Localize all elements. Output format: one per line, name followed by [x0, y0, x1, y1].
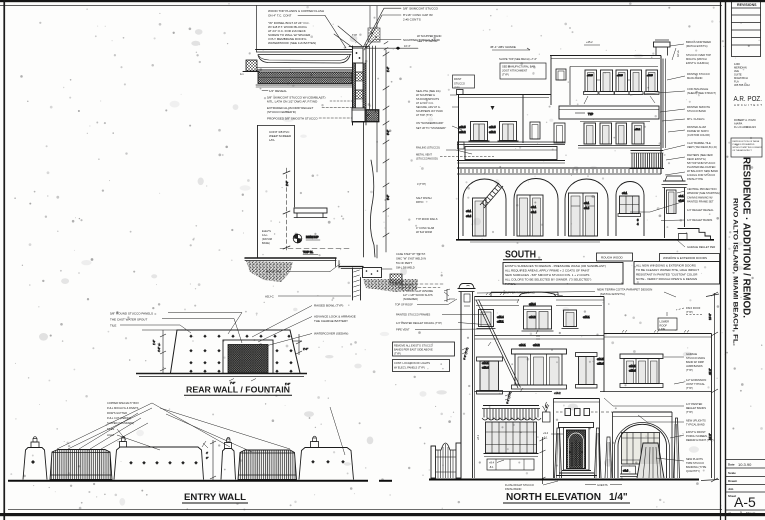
- svg-text:FINISH BAND: FINISH BAND: [505, 487, 522, 491]
- svg-text:GARAGE: GARAGE: [686, 352, 697, 356]
- svg-text:+14.2: +14.2: [533, 343, 540, 347]
- svg-text:FLUSH RIGHT STUCCO: FLUSH RIGHT STUCCO: [505, 483, 534, 487]
- svg-text:JAMB BANDS: JAMB BANDS: [686, 364, 703, 368]
- svg-text:TYPICAL BAND: TYPICAL BAND: [686, 423, 705, 427]
- svg-text:(STUCCO EMBED'D): (STUCCO EMBED'D): [267, 110, 296, 114]
- svg-text:of: of: [728, 511, 731, 515]
- svg-text:ADJ-C: ADJ-C: [265, 295, 275, 299]
- svg-text:TOP OF ROOF: TOP OF ROOF: [395, 303, 413, 307]
- svg-text:2'-0": 2'-0": [303, 347, 308, 351]
- svg-text:L/FL: L/FL: [269, 138, 275, 142]
- svg-text:TILES: TILES: [107, 427, 114, 431]
- svg-text:GUESTS: GUESTS: [597, 483, 608, 487]
- svg-text:5: 5: [740, 511, 742, 515]
- svg-text:0": 0": [206, 456, 208, 460]
- svg-text:NOTE - VERIFY ROUGH OPEN'G & D: NOTE - VERIFY ROUGH OPEN'G & DESIGN: [636, 277, 697, 281]
- svg-text:1'-4": 1'-4": [386, 67, 390, 72]
- svg-text:QUANTITY): QUANTITY): [686, 469, 700, 473]
- svg-text:Sheets: Sheets: [746, 511, 756, 515]
- svg-text:(CUSTOM COLOR): (CUSTOM COLOR): [687, 133, 710, 137]
- svg-text:STUCCO: STUCCO: [454, 82, 465, 86]
- svg-text:WINDOW (SHE STARTING): WINDOW (SHE STARTING): [687, 191, 720, 195]
- svg-text:PROPOSED 5/8" SMOOTH STUCCO: PROPOSED 5/8" SMOOTH STUCCO: [267, 117, 318, 121]
- svg-text:NEW UPLIGHTS: NEW UPLIGHTS: [686, 419, 706, 423]
- svg-text:PAINT: PAINT: [454, 77, 462, 81]
- svg-text:TOP M.: TOP M.: [303, 250, 313, 254]
- svg-text:+10.5: +10.5: [459, 125, 466, 129]
- svg-text:(TYP): (TYP): [454, 87, 460, 89]
- svg-text:REPAIR & PAINT (TYP): REPAIR & PAINT (TYP): [686, 438, 714, 442]
- svg-text:SET UP TO "STANDARD": SET UP TO "STANDARD": [416, 126, 446, 130]
- svg-text:3'-6": 3'-6": [386, 195, 390, 200]
- svg-text:BANDING (TYPE: BANDING (TYPE: [686, 465, 706, 469]
- svg-text:W/ SCUPPER &: W/ SCUPPER &: [416, 93, 435, 97]
- svg-text:WATERCOVER (SEDAN): WATERCOVER (SEDAN): [314, 332, 348, 336]
- svg-text:& RAILG FOR STUCCO: & RAILG FOR STUCCO: [687, 173, 715, 177]
- svg-text:ALL COLORS TO BE SELECTED BY O: ALL COLORS TO BE SELECTED BY OWNER. ("3 …: [505, 278, 591, 282]
- svg-text:PAINTED FRAME SET: PAINTED FRAME SET: [687, 200, 714, 204]
- svg-text:EXIST'G FRONT: EXIST'G FRONT: [686, 430, 706, 434]
- svg-text:SS DOWNSPOUTS: SS DOWNSPOUTS: [416, 97, 439, 101]
- svg-text:+9.1: +9.1: [679, 194, 685, 198]
- svg-text:1/4": 1/4": [609, 492, 628, 503]
- svg-text:+16.4: +16.4: [529, 302, 536, 306]
- svg-text:2 #5 CONT'S: 2 #5 CONT'S: [403, 18, 421, 22]
- svg-text:NORTH ELEVATION: NORTH ELEVATION: [506, 492, 601, 503]
- svg-text:TILE: TILE: [110, 324, 116, 328]
- svg-text:ROUGH WOOD: ROUGH WOOD: [601, 256, 623, 260]
- svg-text:ROOF: ROOF: [660, 324, 668, 328]
- svg-text:RAFTERS (SEE NEW: RAFTERS (SEE NEW: [687, 153, 713, 157]
- svg-text:SLOPE TOP (SEE MECH) +7'-6": SLOPE TOP (SEE MECH) +7'-6": [499, 57, 537, 61]
- svg-text:SECURE, ADV AT G.: SECURE, ADV AT G.: [416, 105, 441, 109]
- svg-text:MERIDIAN: MERIDIAN: [734, 66, 747, 70]
- svg-text:1/4" PAINTED: 1/4" PAINTED: [686, 402, 702, 406]
- svg-text:PATIO: PATIO: [416, 200, 423, 204]
- svg-text:(MATCH EXIST'G): (MATCH EXIST'G): [686, 44, 708, 48]
- svg-text:1'-6": 1'-6": [152, 340, 156, 345]
- svg-text:GMC "W" SYST WELD IN: GMC "W" SYST WELD IN: [396, 257, 426, 261]
- svg-text:MIAMI BCH: MIAMI BCH: [734, 76, 748, 80]
- svg-text:AIA/PA: AIA/PA: [734, 122, 742, 126]
- svg-text:PAINTED SMOOTH: PAINTED SMOOTH: [687, 105, 710, 109]
- svg-text:(TYP): (TYP): [394, 352, 401, 356]
- svg-text:FIN'd ROOF: FIN'd ROOF: [686, 306, 701, 310]
- svg-text:BAND W/ DRIP: BAND W/ DRIP: [686, 360, 704, 364]
- svg-text:GARAGE REGLET PER: GARAGE REGLET PER: [687, 245, 715, 249]
- svg-text:SOUTH: SOUTH: [505, 250, 536, 261]
- svg-text:(TYP): (TYP): [502, 73, 509, 77]
- svg-text:(DATUM: (DATUM: [262, 237, 272, 241]
- svg-text:AT 12 NO' O.C.: AT 12 NO' O.C.: [416, 101, 434, 105]
- svg-text:PLANS IS PROHIBITED: PLANS IS PROHIBITED: [733, 143, 755, 146]
- svg-text:ADVANCE LOOK & ARRANGE: ADVANCE LOOK & ARRANGE: [314, 315, 356, 319]
- svg-text:THE CAST WATER SPOUT: THE CAST WATER SPOUT: [110, 318, 147, 322]
- svg-text:3 (TYP): 3 (TYP): [417, 182, 426, 186]
- svg-text:MLDG BAND: MLDG BAND: [687, 76, 703, 80]
- svg-text:SALT FINISH: SALT FINISH: [416, 196, 432, 200]
- svg-text:RAILING (STUCCO): RAILING (STUCCO): [416, 146, 440, 150]
- svg-text:PORCH SCREEN,: PORCH SCREEN,: [686, 434, 708, 438]
- svg-text:CONT. LOCATION OF LIGHTS: CONT. LOCATION OF LIGHTS: [394, 361, 430, 365]
- svg-text:REVISIONS: REVISIONS: [737, 3, 757, 7]
- svg-text:W/ BALCONY NEW BAND: W/ BALCONY NEW BAND: [687, 169, 718, 173]
- svg-text:MOLD'G (MATCH: MOLD'G (MATCH: [686, 57, 707, 61]
- svg-text:+10.5: +10.5: [489, 125, 496, 129]
- svg-text:BENCHP: BENCHP: [306, 235, 319, 239]
- svg-text:W/ 6x6 WWM: W/ 6x6 WWM: [416, 230, 432, 234]
- svg-text:(SHELF) (SEE STRUCT): (SHELF) (SEE STRUCT): [687, 91, 716, 95]
- svg-text:SUITE: SUITE: [734, 73, 742, 77]
- svg-text:+10.2: +10.2: [554, 391, 561, 395]
- svg-text:PAINTED STUCCO: PAINTED STUCCO: [687, 72, 710, 76]
- svg-text:4'-6" +/-: 4'-6" +/-: [157, 343, 161, 352]
- svg-text:1/2" REVEAL: 1/2" REVEAL: [269, 89, 287, 93]
- svg-text:CANVAS AWNING W/: CANVAS AWNING W/: [687, 196, 713, 200]
- svg-text:+8.4: +8.4: [623, 469, 629, 473]
- svg-text:-8.1: -8.1: [489, 465, 494, 469]
- svg-text:EXIST'G SURFACES TO REMAIN - P: EXIST'G SURFACES TO REMAIN - PRESSURE WA…: [505, 264, 606, 268]
- svg-text:SCUPPERS 3/4" PLNK: SCUPPERS 3/4" PLNK: [416, 109, 443, 113]
- svg-text:+9.1: +9.1: [466, 209, 472, 213]
- svg-text:TRIM STUCCO: TRIM STUCCO: [686, 461, 704, 465]
- svg-text:CLAY BARREL TILE: CLAY BARREL TILE: [687, 141, 711, 145]
- svg-text:VERT (TAN DECK,B,C,D): VERT (TAN DECK,B,C,D): [687, 145, 717, 149]
- svg-text:45'-1" ABV GRADE: 45'-1" ABV GRADE: [490, 45, 516, 49]
- svg-text:305 555 1212: 305 555 1212: [734, 83, 750, 87]
- svg-text:AT TOP (TYP): AT TOP (TYP): [416, 113, 433, 117]
- svg-text:LOWER: LOWER: [660, 320, 670, 324]
- svg-text:AVE: AVE: [734, 69, 739, 73]
- svg-text:+8.4: +8.4: [489, 461, 495, 465]
- svg-text:OF THE ARCHITECT: OF THE ARCHITECT: [733, 149, 753, 152]
- svg-text:+10.2: +10.2: [459, 130, 466, 134]
- svg-text:JOINT TYPICAL: JOINT TYPICAL: [686, 382, 705, 386]
- svg-text:1" WOOD SLAT W/SOME: 1" WOOD SLAT W/SOME: [403, 289, 433, 293]
- svg-text:SEE TYP DETAIL: SEE TYP DETAIL: [417, 39, 438, 43]
- svg-text:RAISED BOWL (TYP): RAISED BOWL (TYP): [314, 304, 343, 308]
- svg-text:(SCREWED): (SCREWED): [403, 297, 418, 301]
- svg-text:MTL. LATH ON 1/2" DWG AF, P.T.: MTL. LATH ON 1/2" DWG AF, P.T.WD: [267, 100, 318, 104]
- svg-text:+9.4: +9.4: [466, 214, 472, 218]
- svg-text:+15.4: +15.4: [497, 315, 504, 319]
- svg-text:MTL. FLASH'G: MTL. FLASH'G: [687, 117, 705, 121]
- svg-text:A-5: A-5: [734, 494, 756, 510]
- svg-text:5/8" ROUND STUCCO PANELS: 5/8" ROUND STUCCO PANELS: [110, 312, 153, 316]
- svg-text:NEW SURFACES - 5/8" SMOOTH STU: NEW SURFACES - 5/8" SMOOTH STUCCO FIN. 1…: [505, 273, 589, 277]
- svg-text:THE CHARGE BATTERY: THE CHARGE BATTERY: [314, 319, 348, 323]
- svg-text:LINE: LINE: [660, 327, 666, 331]
- svg-text:FL LIC AR0011223: FL LIC AR0011223: [734, 125, 756, 129]
- svg-text:5/8 TOP SKIM STUCCO: 5/8 TOP SKIM STUCCO: [687, 161, 715, 165]
- svg-text:BANDS PER EAST SIDE ABOVE: BANDS PER EAST SIDE ABOVE: [394, 348, 433, 352]
- svg-text:TYPICAL: TYPICAL: [505, 282, 516, 286]
- svg-text:ON "WONDERBOARD": ON "WONDERBOARD": [416, 121, 444, 125]
- svg-text:EXIST'G CHURCH): EXIST'G CHURCH): [686, 61, 709, 65]
- svg-text:WOOD TOP PLANKS & COPPER FLASH: WOOD TOP PLANKS & COPPER FLASH: [268, 9, 324, 13]
- svg-text:TYP ROOF RAILS: TYP ROOF RAILS: [416, 217, 438, 221]
- svg-text:(STUCCO/WOOD): (STUCCO/WOOD): [416, 157, 438, 161]
- svg-text:8"x16" CONC CAP W/: 8"x16" CONC CAP W/: [403, 13, 433, 17]
- svg-text:COPPER SPECIALTY BOX: COPPER SPECIALTY BOX: [107, 401, 139, 405]
- svg-text:ROW'S GUTTER: ROW'S GUTTER: [107, 411, 127, 415]
- svg-text:+10.2: +10.2: [489, 130, 496, 134]
- svg-text:PIPE VENT: PIPE VENT: [396, 328, 410, 332]
- svg-text:WITHOUT WRITTEN CONSENT: WITHOUT WRITTEN CONSENT: [733, 147, 763, 149]
- svg-text:Scale: Scale: [728, 471, 736, 475]
- svg-text:1m: 1m: [240, 72, 244, 76]
- svg-text:A.R. POZ.: A.R. POZ.: [734, 96, 763, 103]
- svg-text:NEW PLANTS: NEW PLANTS: [686, 457, 703, 461]
- svg-text:1/4" REGLET BANDS: 1/4" REGLET BANDS: [687, 218, 713, 222]
- svg-text:STUCCO BAND: STUCCO BAND: [687, 109, 706, 113]
- svg-text:DECK EXIST'G): DECK EXIST'G): [687, 157, 706, 161]
- svg-text:+14.1: +14.1: [597, 357, 604, 361]
- svg-text:12+/-: 12+/-: [262, 233, 268, 237]
- svg-text:5/8" SKIMCOAT STUCCO: 5/8" SKIMCOAT STUCCO: [403, 7, 439, 11]
- svg-text:BASE): BASE): [262, 241, 270, 245]
- svg-text:+14.1: +14.1: [519, 343, 526, 347]
- svg-text:ELEV'S: ELEV'S: [262, 229, 271, 233]
- svg-text:(TYP): (TYP): [686, 410, 693, 414]
- svg-text:Drawn: Drawn: [728, 479, 737, 483]
- svg-text:RESIDENCE · ADDITION / REMOD.: RESIDENCE · ADDITION / REMOD.: [741, 157, 752, 318]
- svg-text:SM-L 3/8 WELD: SM-L 3/8 WELD: [396, 266, 415, 270]
- svg-text:ENTRY WALL: ENTRY WALL: [184, 492, 247, 502]
- svg-text:8'-0": 8'-0": [386, 130, 390, 135]
- svg-text:1/2" x 1/8" WOOD SLATS: 1/2" x 1/8" WOOD SLATS: [403, 293, 433, 297]
- svg-text:10.3.90: 10.3.90: [738, 462, 752, 467]
- svg-text:+9.4: +9.4: [543, 431, 549, 435]
- svg-text:+45.2: +45.2: [586, 40, 593, 44]
- svg-text:ON 4" T.C. CONT: ON 4" T.C. CONT: [268, 14, 292, 18]
- svg-text:JOIST ATTACHMENT: JOIST ATTACHMENT: [502, 69, 528, 73]
- svg-text:REGLET BANDS: REGLET BANDS: [686, 406, 706, 410]
- svg-text:CASE STEP "W" T SYST.: CASE STEP "W" T SYST.: [396, 252, 426, 256]
- svg-text:NEW TERRA COTTA PARAPET DESIGN: NEW TERRA COTTA PARAPET DESIGN: [597, 288, 652, 292]
- svg-text:STUCCO MLDG: STUCCO MLDG: [686, 356, 705, 360]
- svg-text:ROBERT A. POZO: ROBERT A. POZO: [734, 118, 756, 122]
- svg-text:CENTRAL PROJECTION: CENTRAL PROJECTION: [687, 187, 717, 191]
- svg-text:STUCCO OVER TOP: STUCCO OVER TOP: [686, 53, 711, 57]
- svg-text:+9.1: +9.1: [622, 191, 628, 195]
- svg-text:W/ SCUPPER BAND: W/ SCUPPER BAND: [417, 34, 441, 38]
- svg-text:FINISH TYPE: FINISH TYPE: [687, 177, 703, 181]
- svg-text:NOTE 7/A1: NOTE 7/A1: [266, 270, 282, 274]
- svg-text:42'+A: 42'+A: [676, 50, 680, 57]
- svg-text:REAR WALL / FOUNTAIN: REAR WALL / FOUNTAIN: [186, 385, 290, 395]
- svg-text:(TYP): (TYP): [686, 368, 693, 372]
- svg-text:RESISTANT IN PAINTED "CUSTOM": RESISTANT IN PAINTED "CUSTOM" COLOR: [636, 273, 698, 277]
- svg-text:BRICKS MORTARED: BRICKS MORTARED: [686, 40, 711, 44]
- svg-text:10'-6": 10'-6": [708, 313, 712, 320]
- svg-text:TYP: TYP: [352, 33, 357, 37]
- svg-text:FLA: FLA: [734, 80, 739, 84]
- svg-text:REMOVE ALL EXIST'G STUCCO: REMOVE ALL EXIST'G STUCCO: [394, 344, 433, 348]
- svg-text:Job: Job: [728, 487, 734, 491]
- svg-text:+15.1: +15.1: [497, 320, 504, 324]
- svg-text:1290: 1290: [734, 62, 740, 66]
- svg-text:ALL NEW WINDOWS & EXTERIOR DOO: ALL NEW WINDOWS & EXTERIOR DOORS: [636, 264, 696, 268]
- svg-text:METAL VENT: METAL VENT: [416, 153, 432, 157]
- svg-text:16'-4": 16'-4": [404, 44, 411, 48]
- svg-text:+8.1: +8.1: [476, 434, 480, 440]
- svg-text:PLANTER RELOCATED: PLANTER RELOCATED: [687, 165, 715, 169]
- svg-text:COR-TEN ANGLE: COR-TEN ANGLE: [687, 87, 708, 91]
- svg-text:1/4" PAINTED REGLET DR-RAIL (T: 1/4" PAINTED REGLET DR-RAIL (TYP): [396, 321, 442, 325]
- svg-text:(TYP): (TYP): [686, 386, 693, 390]
- svg-text:TO BE CLEARLY WATER-TITE, HIGH: TO BE CLEARLY WATER-TITE, HIGH IMPACT: [636, 268, 699, 272]
- svg-text:REPRODUCTION OF THESE: REPRODUCTION OF THESE: [733, 141, 760, 143]
- svg-text:WINDOW & EXTERIOR DOORS: WINDOW & EXTERIOR DOORS: [663, 256, 707, 260]
- svg-text:+10.4: +10.4: [597, 362, 604, 366]
- svg-text:5% OF PER'T: 5% OF PER'T: [396, 261, 413, 265]
- svg-text:4" CONC SLAB: 4" CONC SLAB: [416, 226, 434, 230]
- svg-text:1/4" REGLET REVEAL: 1/4" REGLET REVEAL: [687, 208, 714, 212]
- svg-text:TYP: TYP: [588, 112, 593, 116]
- svg-text:FULL MOULD'G & RIVETS: FULL MOULD'G & RIVETS: [107, 406, 139, 410]
- svg-text:WATERPROOF (SEE 1x6 BATTEN): WATERPROOF (SEE 1x6 BATTEN): [268, 41, 316, 45]
- svg-text:ARCHITECT: ARCHITECT: [734, 103, 764, 107]
- svg-text:1/2" EXPANSION: 1/2" EXPANSION: [686, 378, 706, 382]
- svg-text:W/ ELEC'L PANELS (TYP): W/ ELEC'L PANELS (TYP): [394, 366, 425, 370]
- svg-text:(MATCH EXIST'G): (MATCH EXIST'G): [600, 292, 625, 296]
- svg-text:2'-6": 2'-6": [285, 181, 289, 186]
- svg-text:PAINTED STUCCO FRAMES: PAINTED STUCCO FRAMES: [396, 313, 431, 317]
- svg-text:SEE MANUFACTURAL BAR: SEE MANUFACTURAL BAR: [502, 65, 535, 69]
- svg-text:(TYP): (TYP): [686, 310, 693, 314]
- svg-text:SEAL PNL (SEE 1/A): SEAL PNL (SEE 1/A): [416, 89, 441, 93]
- svg-text:Date: Date: [728, 463, 735, 467]
- svg-text:FRAME W/ SCR'N: FRAME W/ SCR'N: [687, 129, 709, 133]
- svg-text:40'-0": 40'-0": [708, 368, 712, 375]
- svg-text:ALL REQUIRED AREAS, APPLY PRIM: ALL REQUIRED AREAS, APPLY PRIME + 2 COAT…: [505, 269, 590, 273]
- svg-text:RIVO ALTO ISLAND, MIAMI BEACH,: RIVO ALTO ISLAND, MIAMI BEACH, FL.: [732, 198, 739, 346]
- svg-text:+15.1: +15.1: [583, 315, 590, 319]
- svg-text:PAINTED ALUM: PAINTED ALUM: [687, 125, 706, 129]
